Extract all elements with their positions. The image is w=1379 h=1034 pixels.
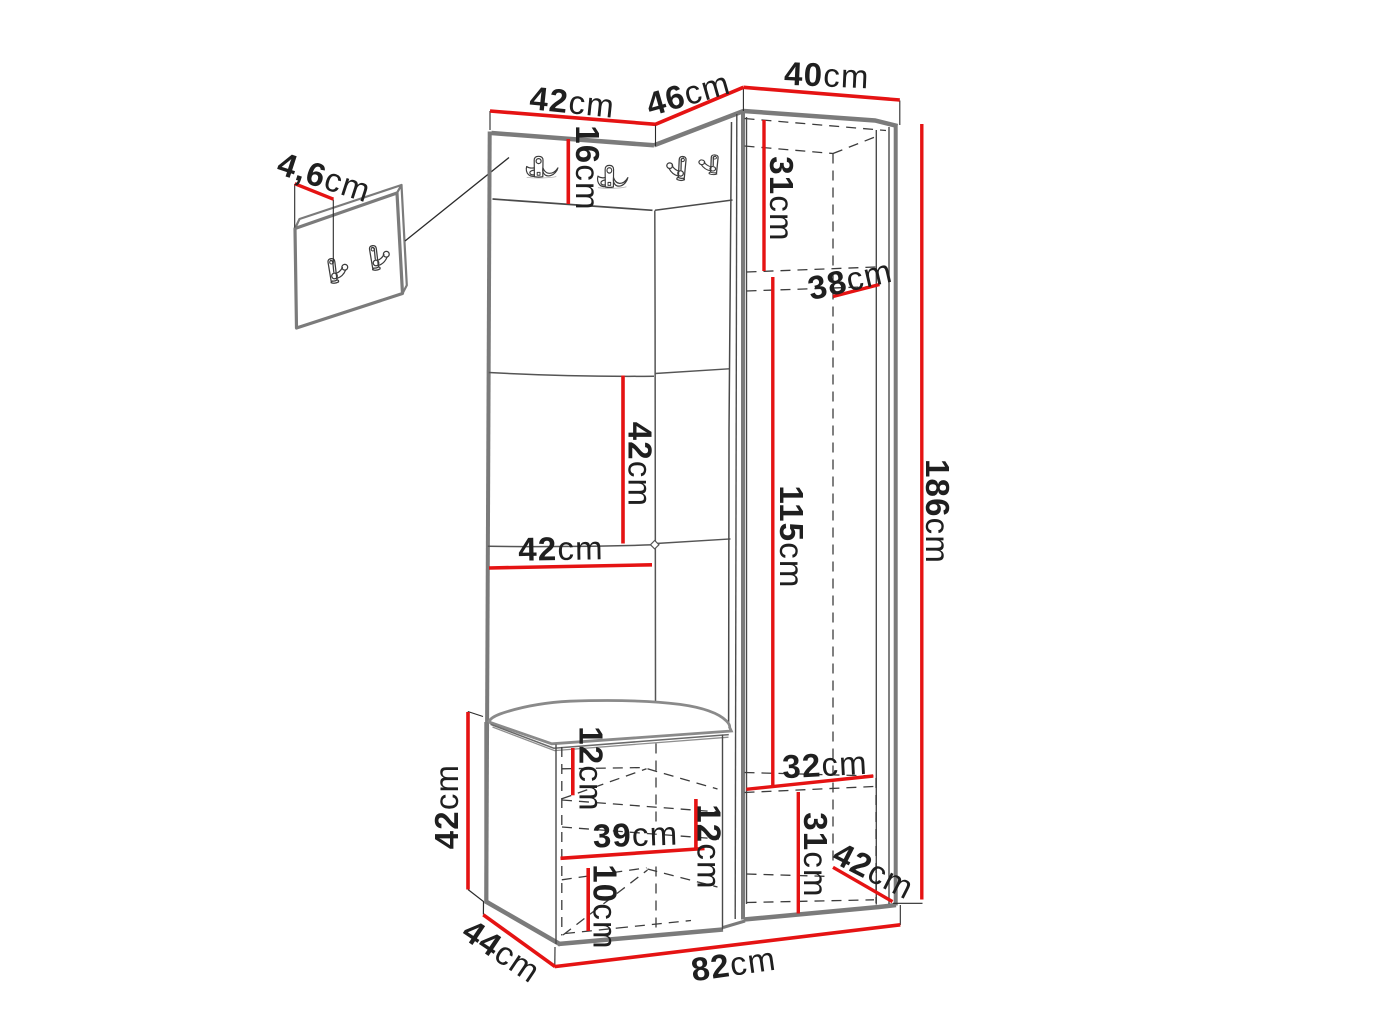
svg-text:115cm: 115cm	[774, 485, 811, 588]
svg-text:4,6cm: 4,6cm	[273, 144, 376, 209]
svg-text:12cm: 12cm	[691, 804, 728, 890]
svg-text:31cm: 31cm	[798, 812, 835, 898]
svg-text:31cm: 31cm	[764, 156, 801, 242]
svg-text:42cm: 42cm	[528, 79, 617, 125]
svg-text:39cm: 39cm	[592, 814, 679, 854]
svg-text:12cm: 12cm	[573, 726, 610, 812]
svg-text:44cm: 44cm	[456, 911, 548, 989]
svg-text:82cm: 82cm	[689, 939, 779, 988]
svg-text:16cm: 16cm	[570, 125, 607, 211]
svg-text:42cm: 42cm	[518, 529, 604, 567]
svg-text:40cm: 40cm	[783, 54, 870, 95]
svg-text:186cm: 186cm	[920, 459, 957, 564]
svg-text:42cm: 42cm	[828, 834, 921, 906]
svg-text:10cm: 10cm	[587, 864, 624, 950]
svg-text:38cm: 38cm	[804, 251, 896, 306]
svg-text:32cm: 32cm	[781, 743, 868, 784]
svg-text:42cm: 42cm	[622, 422, 659, 508]
svg-text:42cm: 42cm	[428, 764, 465, 850]
svg-text:46cm: 46cm	[642, 63, 734, 122]
